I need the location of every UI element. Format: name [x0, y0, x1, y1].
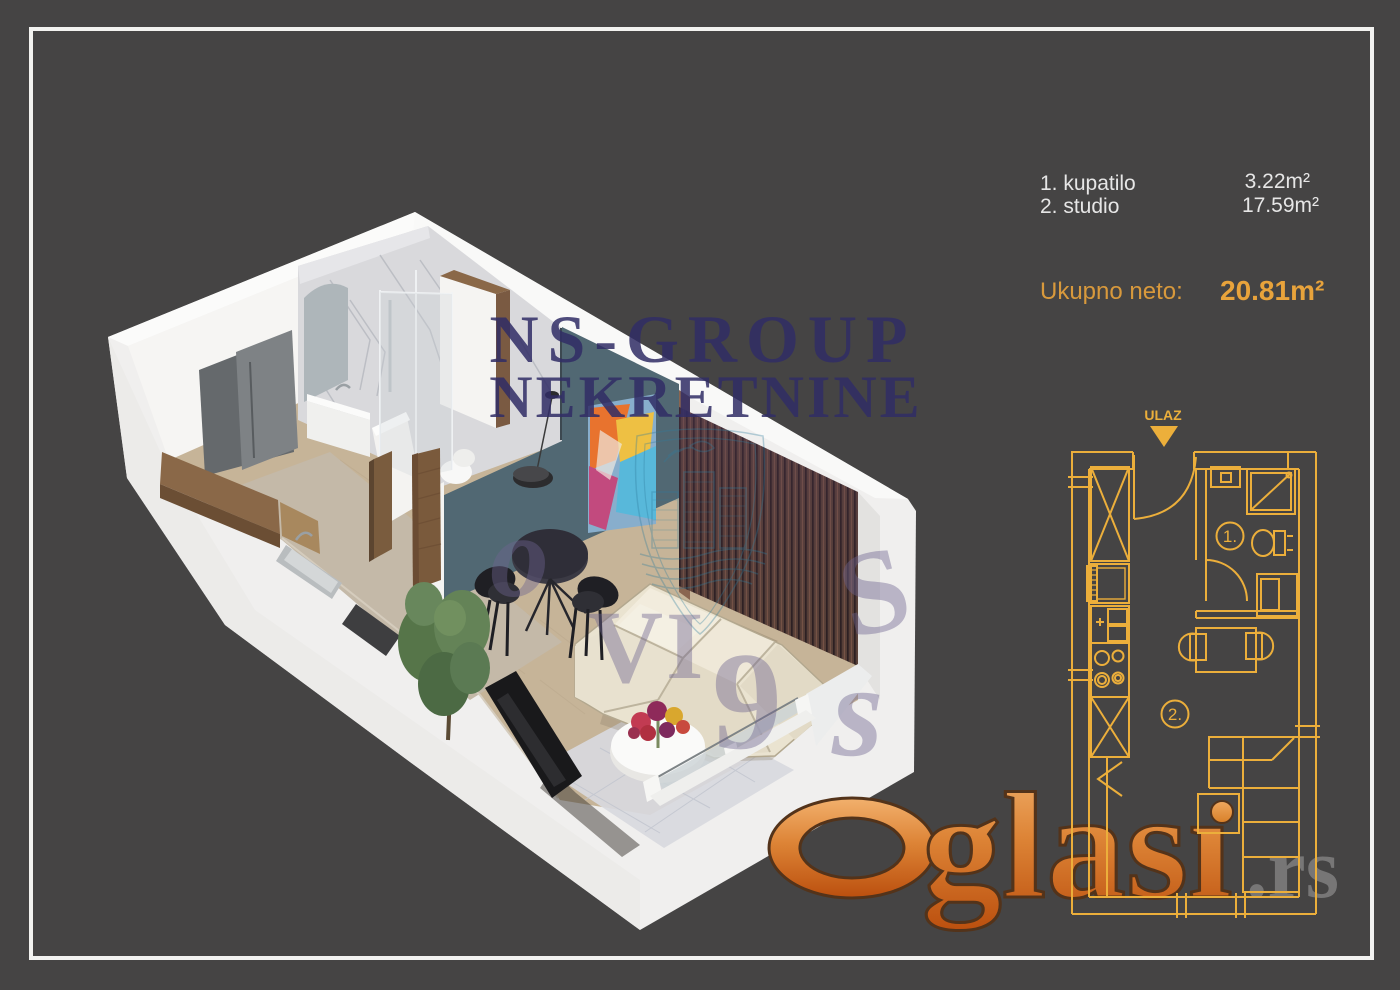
svg-text:ULAZ: ULAZ	[1144, 407, 1182, 423]
svg-text:17.59m²: 17.59m²	[1242, 194, 1319, 217]
svg-text:s: s	[831, 637, 883, 784]
svg-text:2. studio: 2. studio	[1040, 195, 1119, 218]
svg-text:.rs: .rs	[1246, 820, 1339, 916]
svg-text:1.: 1.	[1223, 527, 1237, 546]
svg-text:3.22m²: 3.22m²	[1245, 170, 1310, 193]
svg-text:o: o	[490, 491, 549, 622]
svg-text:9: 9	[712, 624, 782, 779]
svg-text:1. kupatilo: 1. kupatilo	[1040, 172, 1136, 195]
svg-text:V: V	[588, 590, 663, 705]
svg-text:I: I	[666, 592, 703, 699]
svg-text:20.81m²: 20.81m²	[1220, 275, 1324, 306]
svg-text:2.: 2.	[1168, 705, 1182, 724]
svg-text:Ukupno neto:: Ukupno neto:	[1040, 278, 1183, 305]
svg-text:NEKRETNINE: NEKRETNINE	[489, 364, 922, 430]
